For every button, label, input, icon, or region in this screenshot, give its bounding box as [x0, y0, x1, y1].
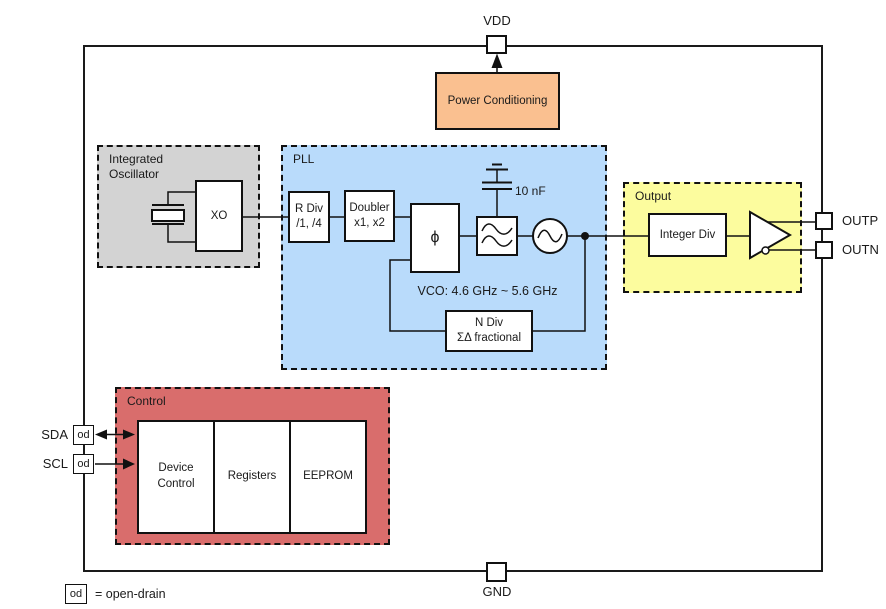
- scl-od-pin: od: [73, 454, 94, 474]
- capacitor-value-label: 10 nF: [515, 184, 546, 198]
- power-conditioning-label: Power Conditioning: [448, 94, 548, 109]
- xo-label: XO: [211, 209, 228, 224]
- phase-detector-symbol: ϕ: [431, 228, 440, 249]
- n-div-fractional-label: ΣΔ fractional: [457, 331, 521, 346]
- pll-region-title: PLL: [293, 152, 314, 167]
- r-div-box: R Div /1, /4: [288, 191, 330, 243]
- xo-box: XO: [195, 180, 243, 252]
- vco-range-label: VCO: 4.6 GHz ~ 5.6 GHz: [390, 284, 585, 298]
- gnd-label: GND: [467, 585, 527, 600]
- oscillator-region-title: Integrated Oscillator: [109, 152, 193, 182]
- registers-block: Registers: [213, 422, 289, 532]
- doubler-label: Doubler: [349, 201, 389, 216]
- r-div-label: R Div: [295, 202, 323, 217]
- r-div-ratio-label: /1, /4: [296, 217, 322, 232]
- scl-od-label: od: [77, 458, 89, 470]
- vdd-label: VDD: [467, 14, 527, 29]
- sda-od-pin: od: [73, 425, 94, 445]
- outp-label: OUTP: [842, 214, 878, 229]
- control-blocks-box: Device Control Registers EEPROM: [137, 420, 367, 534]
- n-div-label: N Div: [475, 316, 503, 331]
- scl-label: SCL: [24, 457, 68, 472]
- integer-div-box: Integer Div: [648, 213, 727, 257]
- outn-label: OUTN: [842, 243, 879, 258]
- legend-text: = open-drain: [95, 587, 166, 601]
- device-control-block: Device Control: [139, 422, 213, 532]
- legend-od-box: od: [65, 584, 87, 604]
- output-region-title: Output: [635, 189, 671, 204]
- doubler-box: Doubler x1, x2: [344, 190, 395, 242]
- power-conditioning-box: Power Conditioning: [435, 72, 560, 130]
- eeprom-label: EEPROM: [303, 469, 353, 485]
- device-control-label: Device Control: [146, 461, 206, 492]
- block-diagram-canvas: Integrated Oscillator PLL Output Control: [0, 0, 886, 609]
- gnd-pin: [486, 562, 507, 582]
- registers-label: Registers: [228, 469, 277, 485]
- vdd-pin: [486, 35, 507, 54]
- outp-pin: [815, 212, 833, 230]
- sda-od-label: od: [77, 429, 89, 441]
- n-div-box: N Div ΣΔ fractional: [445, 310, 533, 352]
- legend-od-label: od: [70, 588, 82, 600]
- doubler-ratio-label: x1, x2: [354, 216, 385, 231]
- eeprom-block: EEPROM: [289, 422, 365, 532]
- phase-detector-box: ϕ: [410, 203, 460, 273]
- control-region-title: Control: [127, 394, 166, 409]
- sda-label: SDA: [24, 428, 68, 443]
- integer-div-label: Integer Div: [660, 228, 716, 243]
- outn-pin: [815, 241, 833, 259]
